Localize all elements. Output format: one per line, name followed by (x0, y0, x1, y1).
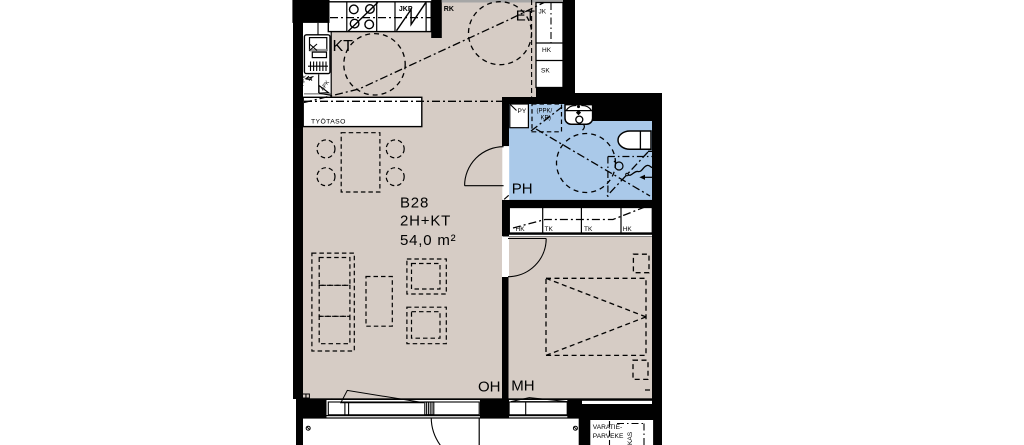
svg-text:TK: TK (545, 226, 554, 233)
svg-text:TK: TK (584, 226, 593, 233)
svg-text:HK: HK (623, 226, 633, 233)
svg-text:TYÖTASO: TYÖTASO (311, 118, 346, 126)
svg-text:SK: SK (541, 68, 550, 75)
svg-text:KR): KR) (541, 116, 551, 122)
svg-text:(PPK/: (PPK/ (537, 109, 553, 115)
svg-text:RK: RK (444, 6, 454, 13)
svg-text:KAS: KAS (627, 431, 634, 445)
svg-text:PH: PH (512, 181, 533, 198)
svg-text:JKP: JKP (399, 6, 413, 13)
svg-text:HK: HK (542, 47, 552, 54)
svg-text:PY: PY (518, 108, 527, 115)
svg-text:OH: OH (478, 379, 501, 396)
svg-text:2H+KT: 2H+KT (400, 213, 451, 230)
svg-text:54,0 m²: 54,0 m² (400, 232, 456, 249)
svg-text:PARVEKE: PARVEKE (593, 433, 624, 440)
svg-text:B28: B28 (400, 195, 429, 212)
svg-text:VARATIE-: VARATIE- (593, 424, 622, 431)
svg-text:ET: ET (516, 8, 535, 25)
svg-text:APK: APK (320, 79, 331, 92)
svg-text:JK: JK (539, 9, 547, 16)
svg-text:KT: KT (333, 38, 354, 55)
svg-text:MH: MH (511, 378, 534, 395)
